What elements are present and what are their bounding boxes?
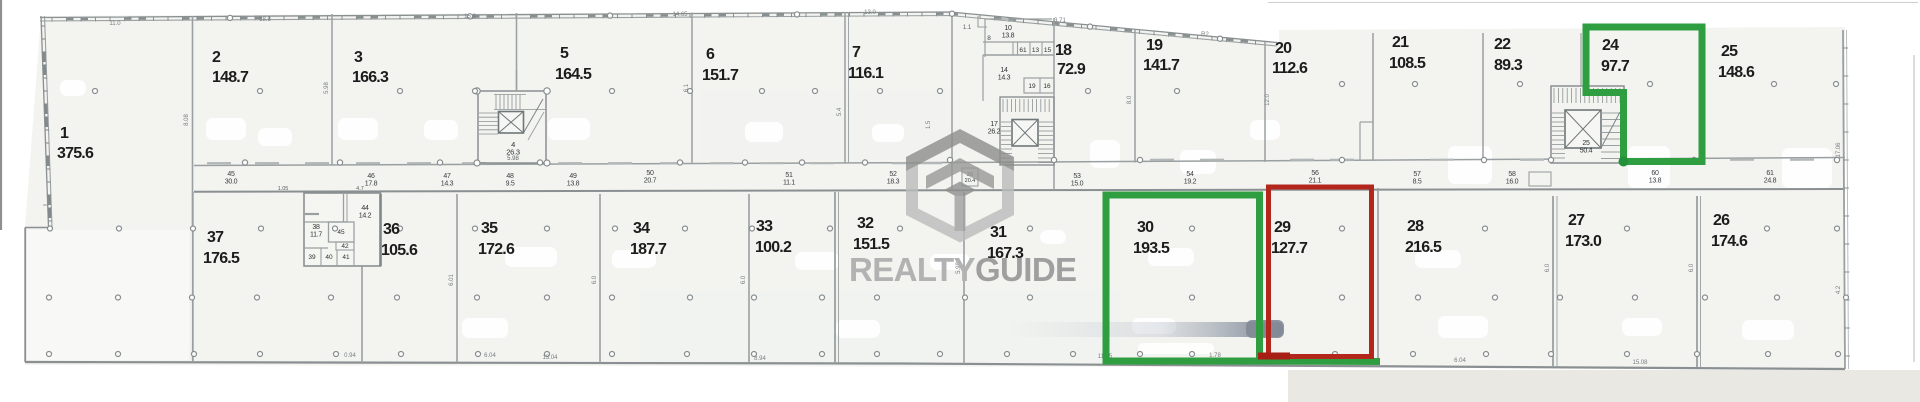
svg-text:11.7: 11.7	[310, 232, 322, 239]
svg-text:166.3: 166.3	[352, 69, 389, 86]
svg-text:49: 49	[569, 173, 577, 180]
svg-text:11.0: 11.0	[109, 21, 121, 27]
svg-text:7: 7	[852, 44, 861, 61]
svg-text:18.8: 18.8	[259, 17, 271, 23]
svg-text:1.1: 1.1	[963, 25, 972, 31]
svg-text:25: 25	[1582, 140, 1590, 147]
svg-text:3: 3	[354, 49, 363, 66]
svg-text:5: 5	[560, 45, 569, 62]
svg-text:20.7: 20.7	[644, 178, 657, 185]
svg-text:6.0: 6.0	[1689, 263, 1695, 272]
svg-text:174.6: 174.6	[1711, 233, 1748, 250]
svg-text:29: 29	[1274, 219, 1291, 236]
svg-text:50.4: 50.4	[1580, 148, 1593, 155]
svg-text:26.2: 26.2	[988, 129, 1001, 136]
svg-text:5.98: 5.98	[324, 82, 330, 94]
svg-text:20.4: 20.4	[965, 178, 976, 184]
svg-text:6.04: 6.04	[1454, 358, 1466, 364]
svg-text:148.6: 148.6	[1718, 64, 1755, 81]
svg-text:375.6: 375.6	[57, 145, 94, 162]
svg-text:36: 36	[383, 221, 400, 238]
svg-text:33: 33	[756, 218, 773, 235]
svg-text:15.8: 15.8	[464, 14, 476, 20]
svg-text:42: 42	[341, 243, 349, 250]
svg-text:28: 28	[1407, 218, 1424, 235]
svg-text:40: 40	[325, 254, 333, 261]
svg-text:34: 34	[633, 220, 650, 237]
svg-text:8: 8	[987, 35, 991, 42]
svg-text:11.1: 11.1	[783, 180, 795, 187]
svg-text:6.04: 6.04	[484, 353, 496, 359]
svg-text:19: 19	[1028, 83, 1036, 90]
svg-text:6.0: 6.0	[741, 275, 747, 284]
svg-text:27: 27	[1568, 212, 1585, 229]
svg-text:5.98: 5.98	[507, 156, 519, 162]
svg-text:44: 44	[361, 205, 369, 212]
svg-text:14.3: 14.3	[998, 75, 1011, 82]
svg-text:45: 45	[227, 171, 235, 178]
svg-text:37: 37	[207, 229, 224, 246]
svg-text:13.04: 13.04	[542, 355, 558, 361]
svg-text:97.7: 97.7	[1601, 58, 1630, 75]
svg-text:47: 47	[443, 173, 451, 180]
svg-text:35: 35	[481, 220, 498, 237]
svg-text:30.0: 30.0	[225, 179, 238, 186]
svg-text:58: 58	[1508, 171, 1516, 178]
svg-text:21.1: 21.1	[1309, 178, 1322, 185]
svg-text:30: 30	[1137, 219, 1154, 236]
svg-text:20: 20	[1275, 40, 1292, 57]
svg-text:216.5: 216.5	[1405, 239, 1442, 256]
svg-text:4.2: 4.2	[1836, 285, 1842, 294]
svg-text:48: 48	[506, 173, 514, 180]
svg-text:17: 17	[990, 121, 998, 128]
svg-text:57: 57	[1413, 171, 1421, 178]
svg-text:6.0: 6.0	[1545, 263, 1551, 272]
svg-text:46: 46	[367, 173, 375, 180]
svg-text:193.5: 193.5	[1133, 240, 1170, 257]
svg-text:61: 61	[1019, 47, 1027, 54]
svg-text:176.5: 176.5	[203, 250, 240, 267]
svg-text:10: 10	[1004, 25, 1012, 32]
svg-text:13.8: 13.8	[1002, 33, 1015, 40]
svg-text:61: 61	[1766, 170, 1774, 177]
svg-text:26: 26	[1713, 212, 1730, 229]
svg-text:8.94: 8.94	[754, 356, 766, 362]
svg-text:127.7: 127.7	[1271, 240, 1308, 257]
svg-text:53: 53	[1073, 173, 1081, 180]
svg-text:8.5: 8.5	[1413, 179, 1422, 186]
svg-text:1.5: 1.5	[926, 120, 932, 129]
svg-text:108.5: 108.5	[1389, 55, 1426, 72]
svg-text:25: 25	[1721, 43, 1738, 60]
svg-text:6.01: 6.01	[449, 274, 455, 286]
svg-text:148.7: 148.7	[212, 69, 249, 86]
svg-text:6: 6	[706, 46, 715, 63]
svg-text:38: 38	[312, 224, 320, 231]
svg-text:72.9: 72.9	[1057, 61, 1086, 78]
svg-text:9.5: 9.5	[506, 181, 515, 188]
svg-text:17.8: 17.8	[365, 181, 378, 188]
svg-text:13.8: 13.8	[567, 181, 580, 188]
svg-text:1.05: 1.05	[278, 186, 289, 192]
svg-text:8.0: 8.0	[1127, 95, 1133, 104]
svg-text:15: 15	[1044, 47, 1052, 54]
svg-text:56: 56	[1311, 170, 1319, 177]
svg-text:2: 2	[212, 49, 221, 66]
svg-text:6.0: 6.0	[592, 275, 598, 284]
svg-text:50: 50	[646, 170, 654, 177]
svg-text:41: 41	[342, 254, 350, 261]
svg-text:19: 19	[1146, 37, 1163, 54]
svg-text:151.7: 151.7	[702, 67, 739, 84]
svg-text:13.0: 13.0	[864, 10, 876, 16]
svg-text:51: 51	[785, 172, 793, 179]
svg-text:141.7: 141.7	[1143, 57, 1180, 74]
svg-text:R2: R2	[1201, 32, 1209, 38]
svg-text:24: 24	[1602, 37, 1619, 54]
svg-text:18: 18	[1055, 42, 1072, 59]
svg-text:4.7: 4.7	[356, 186, 364, 192]
svg-text:13.8: 13.8	[1649, 178, 1662, 185]
svg-text:32: 32	[857, 215, 874, 232]
svg-text:1: 1	[60, 125, 69, 142]
svg-text:16: 16	[1043, 83, 1051, 90]
svg-text:24.8: 24.8	[1764, 178, 1777, 185]
svg-text:13: 13	[1032, 47, 1040, 54]
svg-text:14: 14	[1000, 67, 1008, 74]
svg-text:17.06: 17.06	[1836, 142, 1842, 158]
svg-text:22: 22	[1494, 36, 1511, 53]
svg-text:112.6: 112.6	[1272, 60, 1308, 77]
svg-text:REALTYGUIDE: REALTYGUIDE	[849, 251, 1076, 288]
svg-text:15.0: 15.0	[1071, 181, 1084, 188]
svg-text:14.65: 14.65	[672, 12, 688, 18]
svg-text:12.0: 12.0	[1265, 94, 1271, 106]
svg-text:164.5: 164.5	[555, 66, 592, 83]
svg-text:15.08: 15.08	[1632, 360, 1648, 366]
svg-text:31: 31	[990, 224, 1007, 241]
svg-text:116.1: 116.1	[848, 65, 884, 82]
svg-text:21: 21	[1392, 34, 1409, 51]
svg-text:52: 52	[889, 171, 897, 178]
svg-text:54: 54	[1186, 171, 1194, 178]
svg-text:5.4: 5.4	[837, 107, 843, 116]
svg-text:14.2: 14.2	[359, 213, 372, 220]
svg-text:60: 60	[1651, 170, 1659, 177]
svg-text:14.3: 14.3	[441, 181, 454, 188]
svg-text:89.3: 89.3	[1494, 57, 1523, 74]
svg-text:18.3: 18.3	[887, 179, 900, 186]
svg-text:19.2: 19.2	[1184, 179, 1197, 186]
svg-text:100.2: 100.2	[755, 239, 792, 256]
svg-text:45: 45	[337, 229, 345, 236]
svg-text:172.6: 172.6	[478, 241, 515, 258]
svg-text:3.71: 3.71	[1054, 18, 1066, 24]
svg-text:8.08: 8.08	[184, 114, 190, 126]
svg-text:6.1: 6.1	[684, 83, 690, 92]
svg-text:187.7: 187.7	[630, 241, 667, 258]
svg-text:16.0: 16.0	[1506, 179, 1519, 186]
svg-text:173.0: 173.0	[1565, 233, 1602, 250]
svg-text:39: 39	[308, 254, 316, 261]
svg-text:105.6: 105.6	[381, 242, 418, 259]
svg-text:0.94: 0.94	[344, 353, 356, 359]
